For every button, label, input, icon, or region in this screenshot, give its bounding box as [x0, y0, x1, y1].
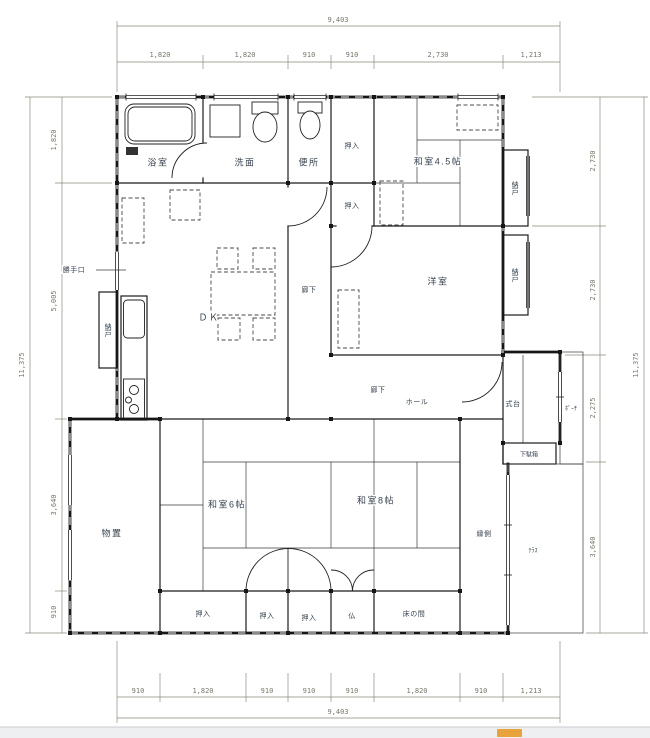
dim-right-seg: 3,640 — [589, 536, 597, 557]
room-label-hall: ホール — [406, 398, 429, 406]
dim-top-seg: 1,820 — [234, 51, 255, 59]
room-label-rouka: 廊下 — [302, 285, 317, 294]
dim-left-seg: 3,640 — [50, 494, 58, 515]
dim-top-seg: 1,213 — [520, 51, 541, 59]
stove — [124, 379, 145, 418]
dim-bottom-seg: 910 — [303, 687, 316, 695]
room-label-monooki: 物置 — [101, 527, 122, 538]
floor-plan-canvas: 9,403 1,820 1,820 910 910 2,730 1,213 91… — [0, 0, 650, 738]
room-label-bathroom: 浴室 — [147, 156, 168, 167]
room-label-engawa: 縁側 — [477, 529, 492, 538]
dim-right-overall: 11,375 — [632, 352, 640, 377]
room-label-oshiire: 押入 — [345, 201, 360, 210]
room-label-oshiire: 押入 — [345, 141, 360, 150]
washing-machine — [210, 105, 240, 137]
dim-bottom-seg: 1,213 — [520, 687, 541, 695]
dim-top-overall: 9,403 — [327, 16, 348, 24]
room-label-oshiire: 押入 — [302, 613, 317, 622]
room-label-katteguchi: 勝手口 — [63, 265, 86, 274]
dim-bottom-overall: 9,403 — [327, 708, 348, 716]
dim-top-seg: 1,820 — [149, 51, 170, 59]
dim-top-seg: 910 — [303, 51, 316, 59]
dim-right-seg: 2,730 — [589, 279, 597, 300]
room-label-washitsu-8: 和室8帖 — [357, 494, 395, 505]
dim-bottom-seg: 910 — [261, 687, 274, 695]
dim-left-overall: 11,375 — [18, 352, 26, 377]
room-label-tokonoma: 床の間 — [403, 609, 426, 618]
room-label-washroom: 洗面 — [234, 156, 255, 167]
washbasin-bowl — [253, 112, 277, 142]
room-label-nando: 納戸 — [104, 322, 112, 338]
dim-bottom-seg: 1,820 — [192, 687, 213, 695]
kitchen-sink — [124, 300, 145, 338]
room-label-getabako: 下駄箱 — [520, 451, 538, 459]
dim-right-seg: 2,275 — [589, 397, 597, 418]
room-label-oshiire: 押入 — [196, 609, 211, 618]
statusbar-background — [0, 727, 650, 738]
dim-bottom-seg: 1,820 — [406, 687, 427, 695]
room-label-terrace: ﾃﾗｽ — [528, 548, 537, 555]
room-label-rouka: 廊下 — [371, 385, 386, 394]
dim-left-seg: 910 — [50, 606, 58, 619]
scrollbar-thumb[interactable] — [497, 729, 522, 737]
toilet-bowl — [300, 111, 320, 139]
room-label-toilet: 便所 — [298, 156, 319, 167]
room-label-youshitsu: 洋室 — [427, 275, 448, 286]
dim-top-seg: 910 — [346, 51, 359, 59]
room-label-dk: ＤＫ — [198, 312, 219, 322]
dim-bottom-seg: 910 — [475, 687, 488, 695]
room-label-nando: 納戸 — [511, 180, 519, 196]
status-strip — [0, 727, 650, 738]
dim-top-seg: 2,730 — [427, 51, 448, 59]
bath-heater — [126, 147, 138, 155]
room-label-porch: ﾎﾟｰﾁ — [565, 406, 577, 413]
page-background — [0, 0, 650, 738]
bathtub-inner — [128, 107, 192, 141]
dim-right-seg: 2,730 — [589, 150, 597, 171]
room-label-oshiire: 押入 — [260, 611, 275, 620]
dim-bottom-seg: 910 — [346, 687, 359, 695]
dim-left-seg: 1,820 — [50, 129, 58, 150]
dim-left-seg: 5,005 — [50, 290, 58, 311]
room-label-washitsu-6: 和室6帖 — [208, 498, 246, 509]
room-label-washitsu-45: 和室4.5帖 — [414, 155, 463, 166]
room-label-butsuma: 仏 — [348, 612, 356, 620]
room-label-shikidai: 式台 — [506, 399, 521, 408]
room-label-nando: 納戸 — [511, 267, 519, 283]
dim-bottom-seg: 910 — [132, 687, 145, 695]
